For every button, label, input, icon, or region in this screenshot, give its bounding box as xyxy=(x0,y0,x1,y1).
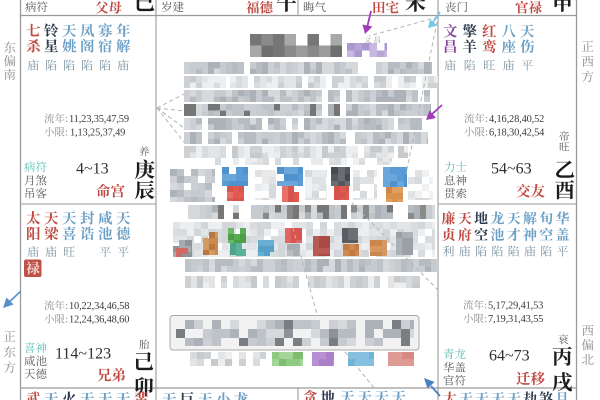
svg-text:5,17,29,41,53: 5,17,29,41,53 xyxy=(488,301,543,312)
svg-text:4~13: 4~13 xyxy=(76,161,109,178)
svg-text:54~63: 54~63 xyxy=(491,161,532,178)
svg-text:1,13,25,37,49: 1,13,25,37,49 xyxy=(70,128,125,139)
svg-text::: : xyxy=(65,113,68,125)
svg-text:7,19,31,43,55: 7,19,31,43,55 xyxy=(488,314,543,325)
svg-text::: : xyxy=(485,126,488,138)
svg-text::: : xyxy=(65,300,68,312)
svg-text:6,18,30,42,54: 6,18,30,42,54 xyxy=(489,128,545,139)
svg-text::: : xyxy=(65,126,68,138)
svg-text::: : xyxy=(484,299,487,311)
svg-text::: : xyxy=(485,113,488,125)
svg-text::: : xyxy=(484,313,487,325)
svg-text:12,24,36,48,60: 12,24,36,48,60 xyxy=(69,315,129,326)
svg-text:11,23,35,47,59: 11,23,35,47,59 xyxy=(69,114,129,125)
svg-text::: : xyxy=(65,313,68,325)
svg-text:114~123: 114~123 xyxy=(55,346,111,363)
svg-text:4,16,28,40,52: 4,16,28,40,52 xyxy=(489,114,544,125)
svg-text:64~73: 64~73 xyxy=(489,348,530,365)
svg-text:10,22,34,46,58: 10,22,34,46,58 xyxy=(69,301,129,312)
